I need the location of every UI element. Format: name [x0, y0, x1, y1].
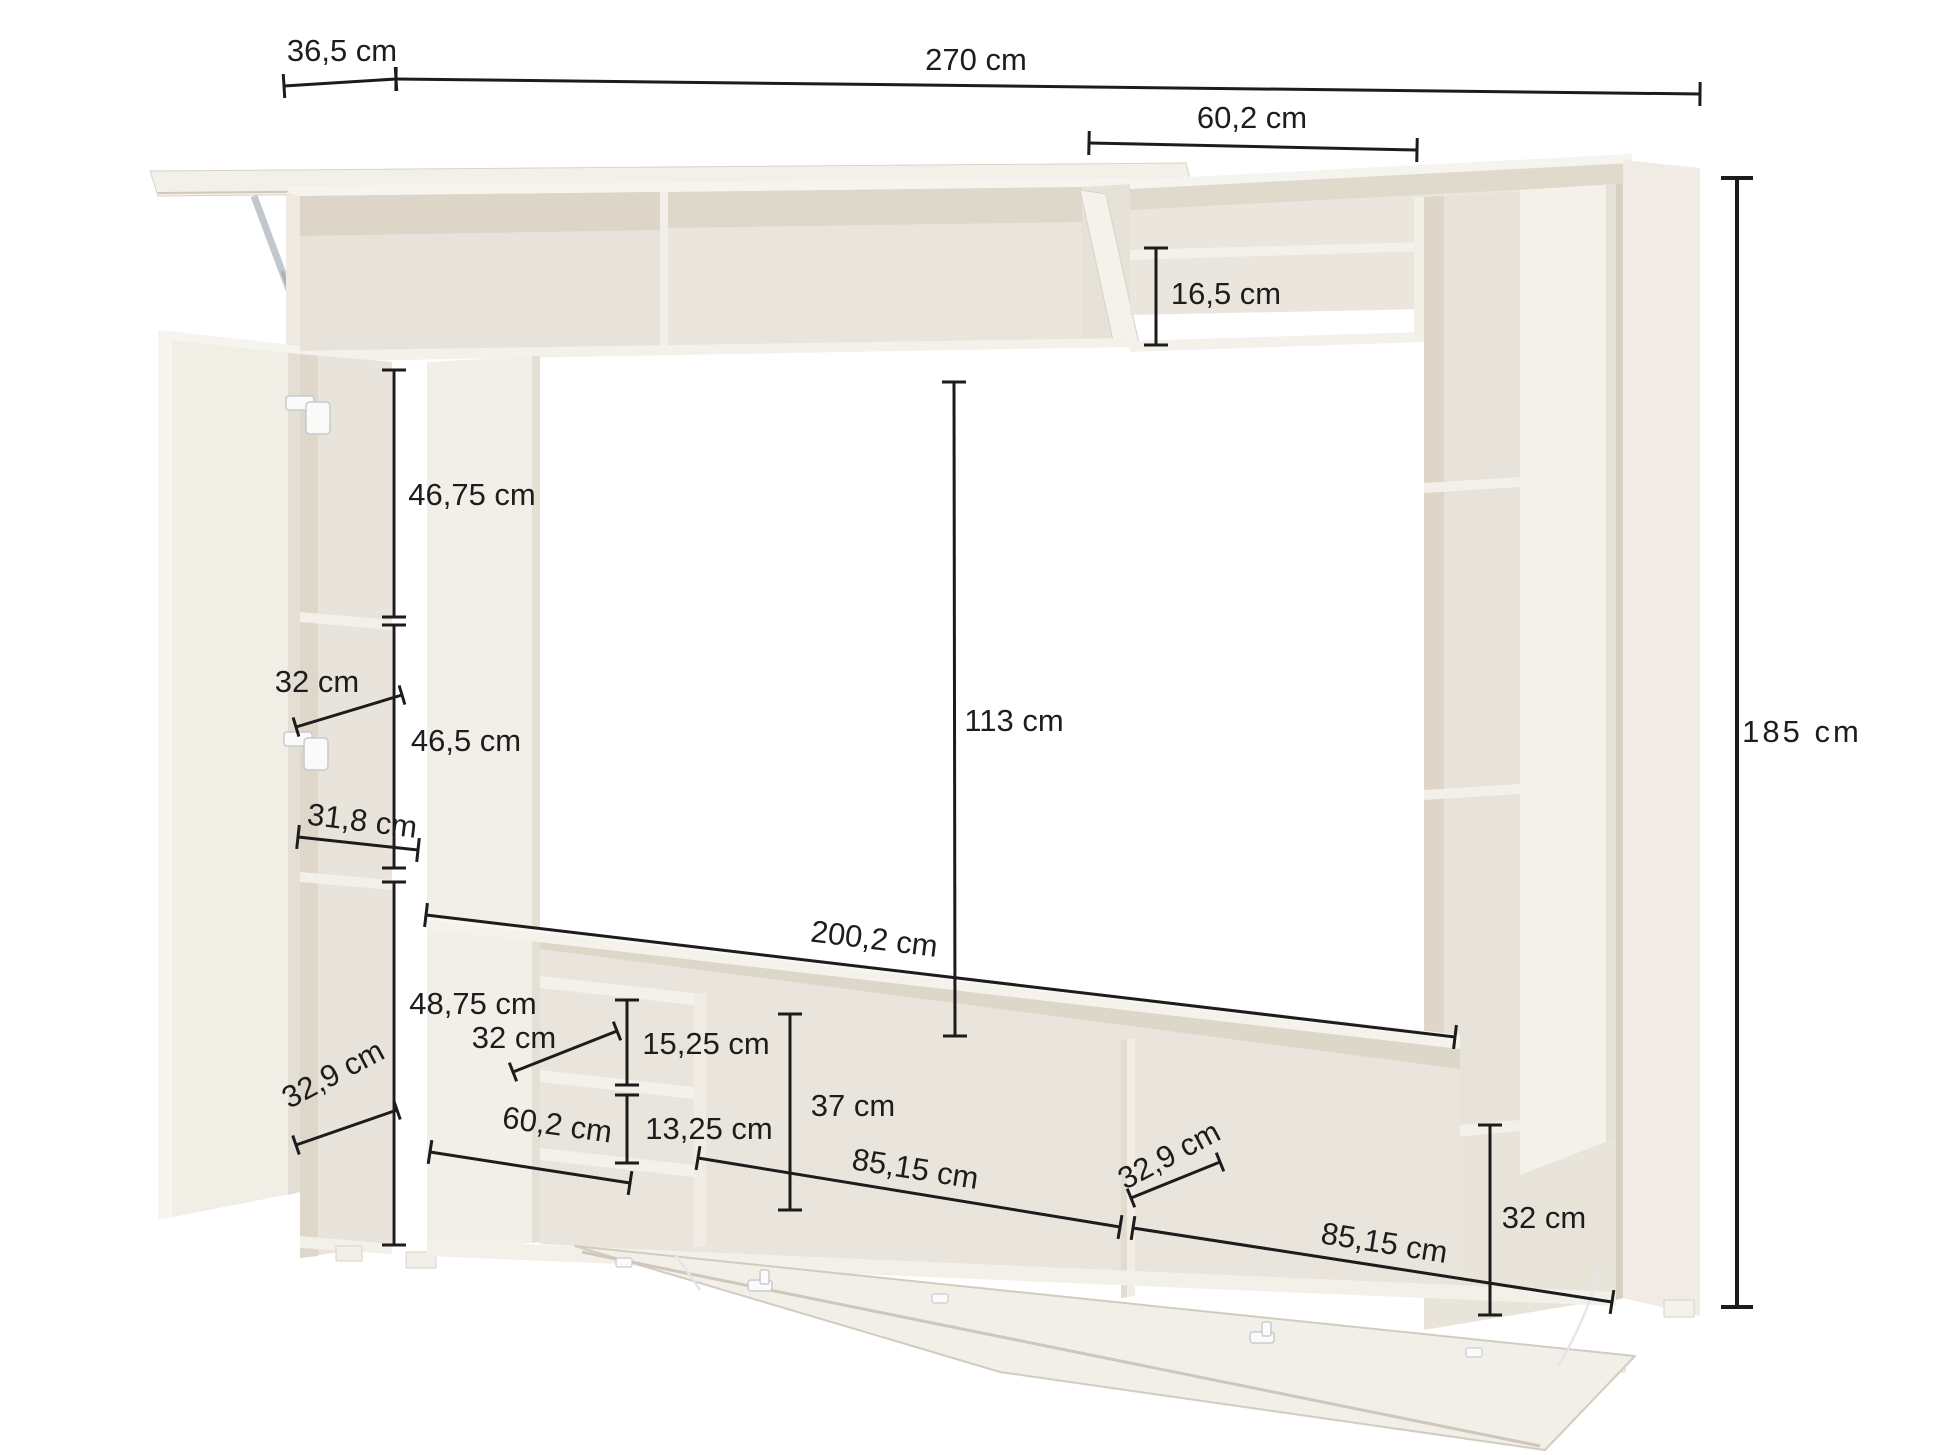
top-cabinet-left-side [286, 192, 300, 363]
top-cabinet [150, 163, 1192, 363]
right-column-foot-outer [1664, 1300, 1694, 1317]
bench-hinge-stub-a [616, 1258, 632, 1267]
dim-top-right-60-2-tick-end [1417, 138, 1418, 162]
dim-left-31-8-tick-end [417, 838, 420, 862]
dim-left-46-75-label: 46,75 cm [408, 477, 536, 512]
dim-width-left-36-5: 36,5 cm [283, 33, 397, 98]
dim-width-total-270: 270 cm [396, 42, 1700, 106]
top-cabinet-interior-right-shadow [668, 187, 1082, 228]
top-cabinet-divider [660, 192, 668, 348]
dim-bench-37-label: 37 cm [811, 1088, 895, 1123]
right-column-interior-shadow [1424, 196, 1444, 1144]
furniture-wall-unit [150, 154, 1700, 1450]
dim-bench-depth-32-label: 32 cm [472, 1020, 556, 1055]
bench-hinge-stub-c [1466, 1348, 1482, 1357]
left-cabinet-foot-a [336, 1246, 362, 1261]
dim-width-total-270-line [396, 79, 1700, 94]
top-cabinet-interior-left-shadow [300, 192, 660, 236]
dim-width-left-36-5-label: 36,5 cm [287, 33, 397, 68]
right-column-door-edge-shade [1606, 184, 1616, 1142]
right-column-side-panel [1623, 160, 1700, 1316]
left-cabinet-door-right-shade [288, 344, 300, 1195]
furniture-diagram-canvas: 36,5 cm270 cm60,2 cm16,5 cm46,75 cm32 cm… [0, 0, 1940, 1455]
dim-tv-height-113-line [954, 382, 955, 1036]
dim-top-right-60-2: 60,2 cm [1089, 100, 1418, 162]
dim-tv-height-113-label: 113 cm [964, 703, 1063, 738]
dim-top-right-60-2-line [1089, 143, 1417, 150]
left-cabinet-door-left-edge [158, 330, 172, 1220]
dim-width-total-270-label: 270 cm [925, 42, 1027, 77]
dim-height-total-185-label: 185 cm [1742, 714, 1862, 749]
dim-bench-15-25-label: 15,25 cm [642, 1026, 770, 1061]
dim-shelf-gap-16-5-label: 16,5 cm [1171, 276, 1281, 311]
dim-tv-width-200-2-tick-start [425, 903, 428, 927]
dim-left-depth-32-label: 32 cm [275, 664, 359, 699]
dim-tv-height-113: 113 cm [942, 382, 1064, 1036]
dim-left-48-75-label: 48,75 cm [409, 986, 537, 1021]
dim-left-46-5-label: 46,5 cm [411, 723, 521, 758]
dim-top-right-60-2-tick-start [1089, 131, 1090, 155]
dim-bench-13-25-label: 13,25 cm [645, 1111, 773, 1146]
right-column-door [1520, 184, 1616, 1175]
dim-width-left-36-5-tick-start [283, 74, 284, 98]
dimension-diagram: 36,5 cm270 cm60,2 cm16,5 cm46,75 cm32 cm… [0, 0, 1940, 1455]
top-right-divider [1414, 197, 1424, 336]
dim-top-right-60-2-label: 60,2 cm [1197, 100, 1307, 135]
top-right-bottom-board [1130, 332, 1424, 352]
bench-hinge-stub-b [932, 1294, 948, 1303]
dim-right-32-label: 32 cm [1502, 1200, 1586, 1235]
dim-height-total-185: 185 cm [1721, 178, 1862, 1307]
dim-tv-width-200-2-label: 200,2 cm [809, 914, 940, 964]
right-column-gap [1616, 184, 1623, 1300]
right-column [1424, 160, 1700, 1372]
dim-width-left-36-5-line [284, 79, 396, 86]
